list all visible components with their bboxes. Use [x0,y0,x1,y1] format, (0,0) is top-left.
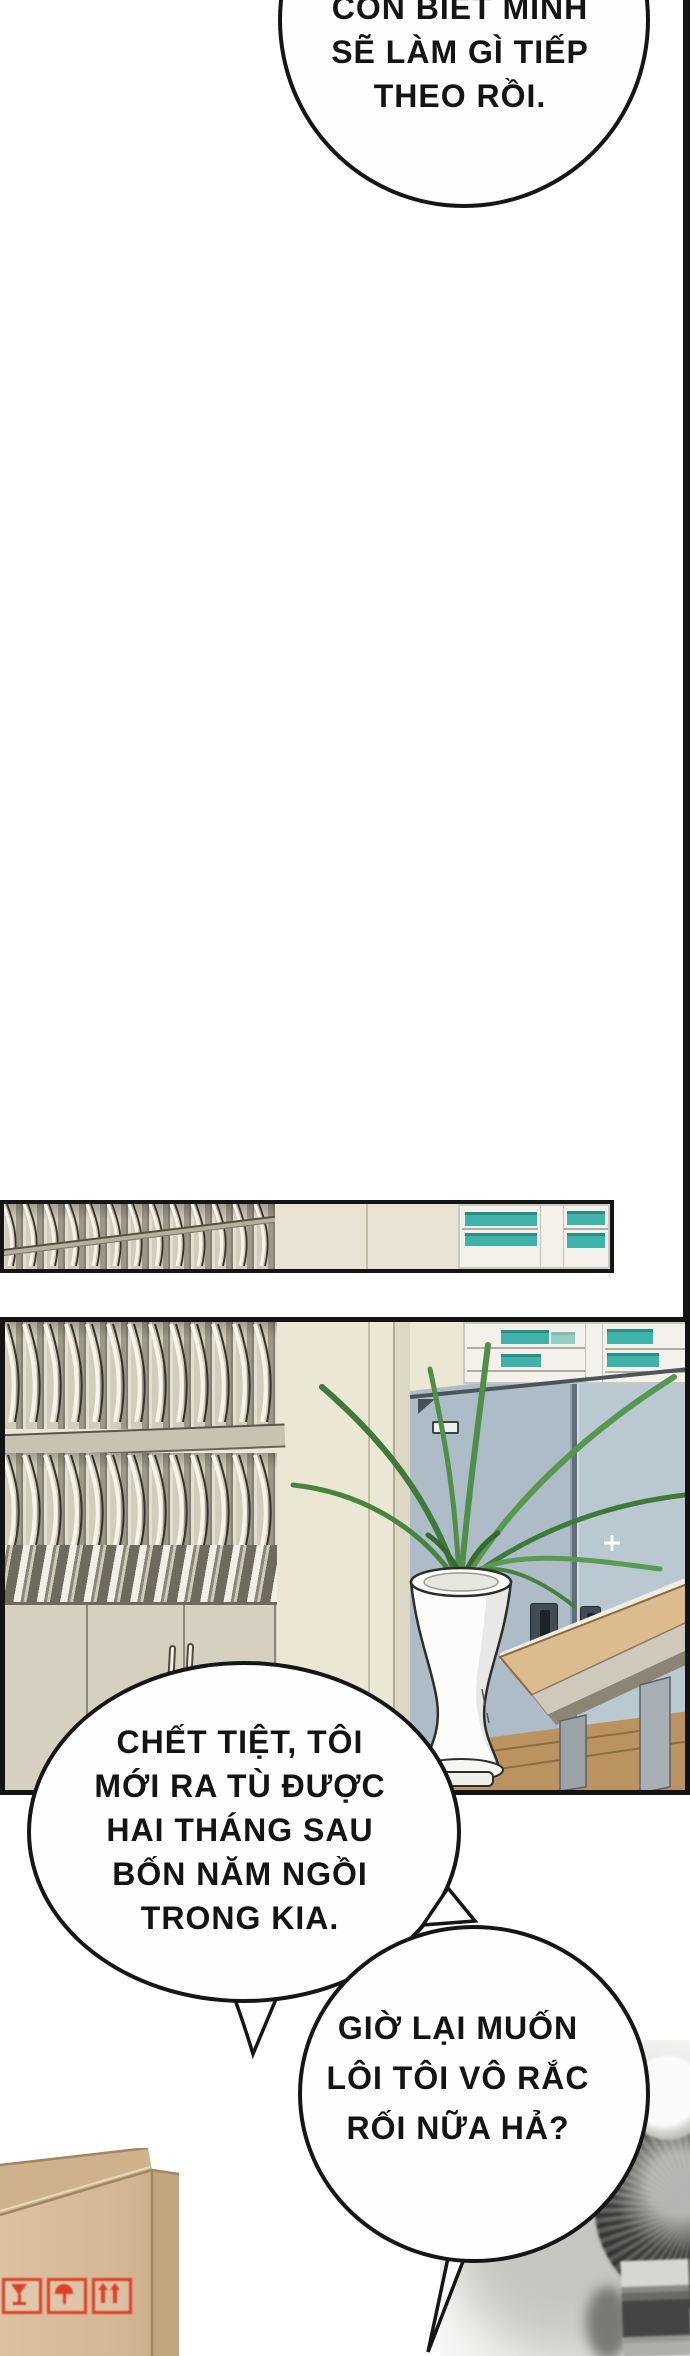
teal-binders [567,1211,605,1225]
comic-page: CÒN BIẾT MÌNH SẼ LÀM GÌ TIẾP THEO RỒI. [0,0,690,2356]
speech-text: HAI THÁNG SAU [27,1808,453,1852]
this-side-up-arrows-icon [92,2278,132,2314]
teal-binders [465,1212,537,1226]
keep-dry-umbrella-icon [47,2278,87,2314]
speech-text: LÔI TÔI VÔ RẮC [286,2056,630,2100]
binder-shelf [458,1204,610,1269]
panel-shelf-strip [0,1200,614,1273]
stamp-glyph-part [63,2294,66,2304]
orchid-plant [293,1345,685,1607]
stamp-glyph-part [18,2294,21,2302]
stamp-glyph-part [55,2284,73,2294]
shelf-post [540,1206,564,1267]
speech-text: BỐN NĂM NGỒI [27,1852,453,1896]
desk-leg [560,1715,586,1791]
stamp-glyph-part [113,2289,117,2303]
teal-binders [465,1233,537,1246]
sparkle [604,1535,620,1551]
fan-neck-pole [620,2259,690,2356]
speech-text: GIỜ LẠI MUỐN [286,2006,630,2050]
speech-text: CHẾT TIỆT, TÔI [27,1720,453,1764]
teal-binders [567,1233,605,1248]
shelf-line [564,1228,608,1230]
speech-text: SẼ LÀM GÌ TIẾP [278,30,642,74]
stamp-glyph-part [98,2283,108,2290]
speech-text: CÒN BIẾT MÌNH [278,0,642,30]
box-edges [0,2148,179,2356]
desk-leg [640,1677,670,1793]
stamp-glyph-part [101,2289,105,2303]
fragile-glass-icon [2,2278,42,2314]
shipping-stamps [2,2278,132,2314]
stamp-glyph-part [110,2283,120,2290]
shelf-line [462,1228,538,1230]
speech-text: RỐI NỮA HẢ? [286,2106,630,2150]
speech-text: MỚI RA TÙ ĐƯỢC [27,1764,453,1808]
wall-seam [366,1204,368,1269]
speech-text: TRONG KIA. [27,1896,453,1940]
speech-text: THEO RỒI. [278,74,642,118]
stamp-glyph-part [13,2302,26,2305]
cardboard-box [0,2148,179,2356]
